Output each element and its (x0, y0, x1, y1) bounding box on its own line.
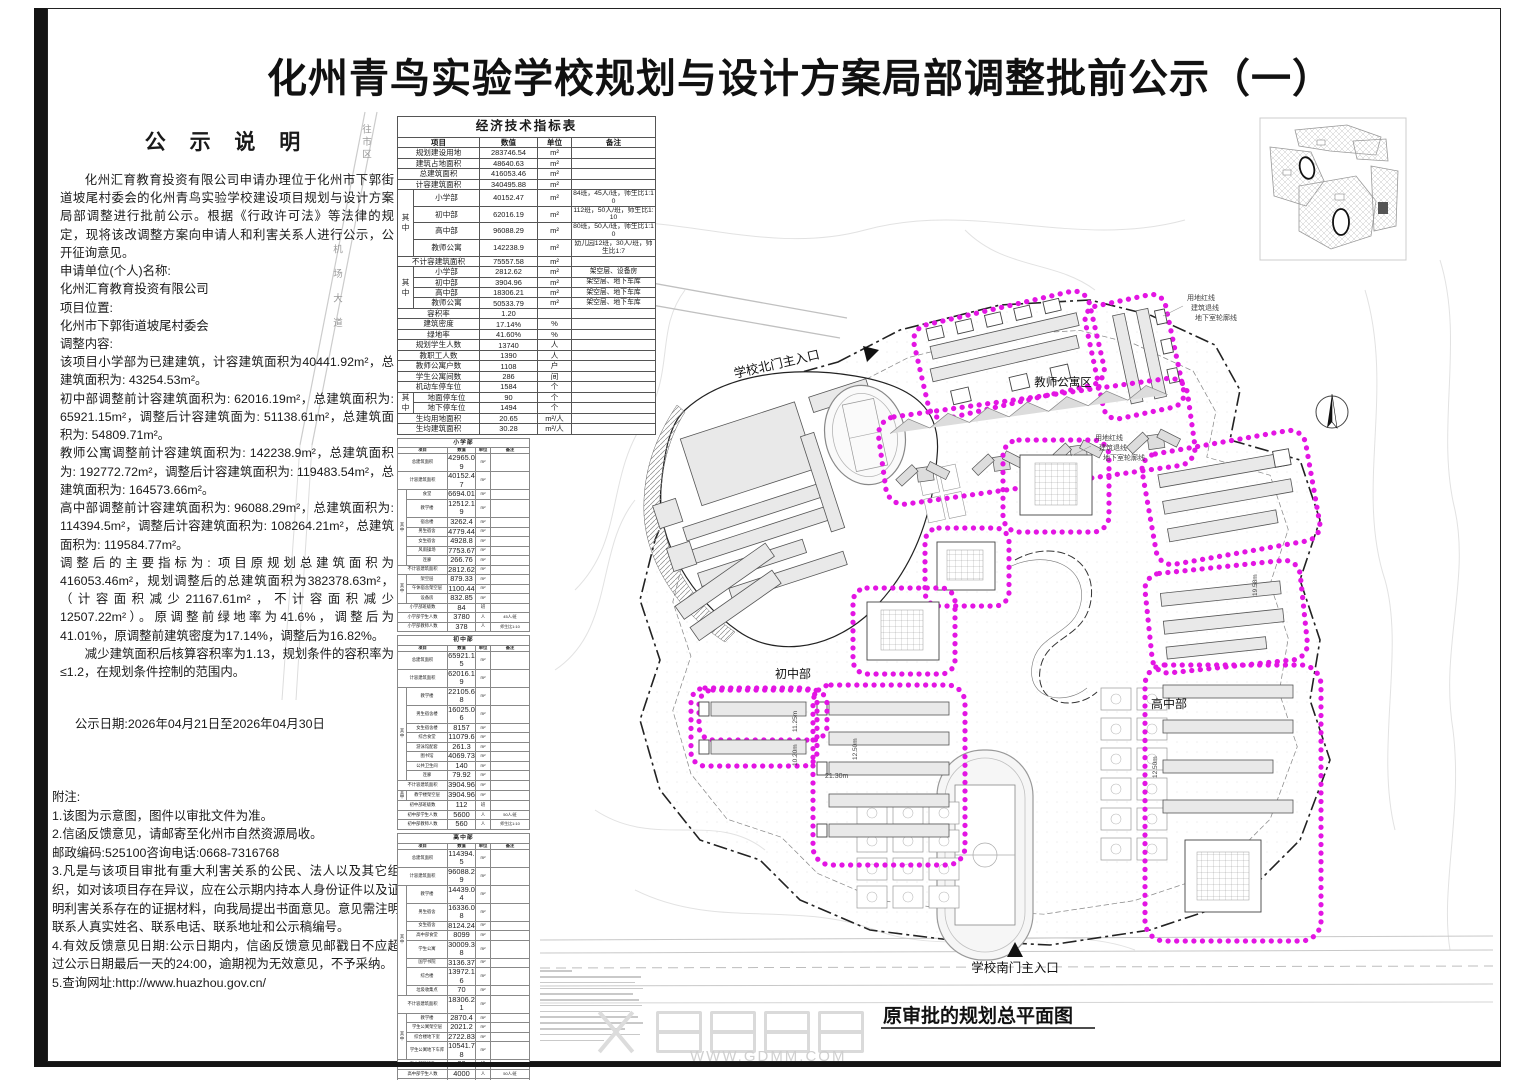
table-row: 学生公寓架空层2021.2m² (398, 1023, 530, 1033)
note-cell (491, 958, 530, 968)
page-title: 化州青鸟实验学校规划与设计方案局部调整批前公示（一） (160, 46, 1440, 104)
unit-cell: m² (476, 556, 491, 566)
note-cell: 84班，45人/班，师生比1:10 (572, 190, 656, 207)
north-arrow-icon (1316, 394, 1348, 428)
item-cell: 总建筑面积 (398, 169, 480, 179)
table-row: 总建筑面积114394.5m² (398, 849, 530, 867)
value-cell: 1584 (480, 382, 538, 392)
item-cell: 建筑密度 (398, 319, 480, 329)
item-cell: 地下停车位 (414, 403, 480, 413)
note-cell (572, 361, 656, 371)
unit-cell: 人 (476, 810, 491, 820)
item-cell: 男生宿舍 (407, 903, 448, 921)
redline-label-2: 用地红线 (1095, 433, 1123, 442)
unit-cell: % (538, 329, 572, 339)
note-cell (491, 517, 530, 527)
note-cell: 架空层、地下车库 (572, 277, 656, 287)
table-row: 教职工人数1390人 (398, 350, 656, 360)
table-row: 不计容建筑面积2812.62m² (398, 565, 530, 575)
unit-cell: m² (476, 490, 491, 500)
note-cell (491, 651, 530, 669)
item-cell: 男生宿舍 (407, 527, 448, 537)
indicator-column: 经济技术指标表项目数值单位备注规划建设用地283746.54m²建筑占地面积48… (397, 116, 655, 1080)
dim-21-30: 21.30m (825, 773, 849, 780)
unit-cell: m² (538, 288, 572, 298)
note-cell (491, 1013, 530, 1023)
value-cell: 17.14% (480, 319, 538, 329)
key-inset-map (1260, 118, 1406, 260)
dim-12-50-junior: 12.50m (852, 738, 859, 760)
column-header: 备注 (572, 137, 656, 147)
item-cell: 小学部学生人数 (398, 613, 448, 623)
unit-cell: m² (476, 885, 491, 903)
redline-labels-upper: 用地红线 建筑退线 地下室轮廓线 (1163, 293, 1237, 322)
table-row: 女生宿舍楼8157m² (398, 723, 530, 733)
table-row: 计容建筑面积96088.29m² (398, 867, 530, 885)
value-cell: 2722.83 (448, 1032, 476, 1042)
unit-cell: 人 (538, 340, 572, 350)
item-cell: 计容建筑面积 (398, 669, 448, 687)
notice-heading: 公 示 说 明 (60, 128, 394, 159)
value-cell: 3904.96 (480, 277, 538, 287)
item-cell: 食堂 (407, 490, 448, 500)
note-cell (491, 849, 530, 867)
table-row: 容积率1.20 (398, 308, 656, 318)
item-cell: 教学楼 (407, 885, 448, 903)
unit-cell: m² (476, 849, 491, 867)
unit-cell: m² (538, 239, 572, 256)
item-cell: 风雨操场 (407, 546, 448, 556)
unit-cell: m² (476, 565, 491, 575)
unit-cell: m² (476, 986, 491, 996)
unit-cell: m² (476, 903, 491, 921)
value-cell: 8099 (448, 931, 476, 941)
table-row: 设备房832.85m² (398, 594, 530, 604)
item-cell: 综合食堂 (407, 733, 448, 743)
unit-cell: m² (476, 867, 491, 885)
item-cell: 绿地率 (398, 329, 480, 339)
table-title: 高中部 (398, 833, 530, 843)
value-cell: 112 (448, 801, 476, 811)
unit-cell: m²/人 (538, 424, 572, 434)
note-cell (572, 413, 656, 423)
table-row: 其中教学楼14439.04m² (398, 885, 530, 903)
note-cell (491, 790, 530, 801)
table-row: 总建筑面积416053.46m² (398, 169, 656, 179)
note-cell (491, 472, 530, 490)
value-cell: 2021.2 (448, 1023, 476, 1033)
unit-cell: 间 (538, 371, 572, 381)
value-cell: 3136.37 (448, 958, 476, 968)
note-cell (491, 968, 530, 986)
note-cell (491, 752, 530, 762)
value-cell: 261.3 (448, 742, 476, 752)
unit-cell: m² (476, 1023, 491, 1033)
table-row: 不计容建筑面积75557.58m² (398, 256, 656, 266)
note-cell (572, 148, 656, 158)
group-cell: 其中 (398, 885, 407, 995)
group-cell: 其中 (398, 1013, 407, 1060)
unit-cell: m² (476, 761, 491, 771)
site-plan-map: 学校北门主入口 学校南门主入口 教师公寓区 初中部 高中部 11.25m 10.… (535, 110, 1505, 1065)
value-cell: 16336.08 (448, 903, 476, 921)
item-cell: 连廊 (407, 556, 448, 566)
table-row: 其中小学部40152.47m²84班，45人/班，师生比1:10 (398, 190, 656, 207)
unit-cell: m² (538, 190, 572, 207)
plan-title: 原审批的规划总平面图 (883, 1004, 1073, 1027)
table-row: 其中食堂6694.01m² (398, 490, 530, 500)
note-cell: 架空层、地下车库 (572, 298, 656, 308)
indicator-table: 经济技术指标表项目数值单位备注规划建设用地283746.54m²建筑占地面积48… (397, 116, 656, 435)
note-cell (491, 885, 530, 903)
table-row: 其中地面停车位90个 (398, 392, 656, 402)
table-row: 初中部教师人数560人师生比1:10 (398, 820, 530, 830)
note-cell (572, 392, 656, 402)
item-cell: 高中部学生人数 (398, 1069, 448, 1079)
unit-cell: m² (538, 148, 572, 158)
unit-cell: m² (476, 517, 491, 527)
senior-label: 高中部 (1151, 696, 1187, 711)
group-cell: 其中 (398, 190, 414, 257)
item-cell: 高中部 (414, 223, 480, 240)
table-title: 小学部 (398, 438, 530, 448)
value-cell: 4069.73 (448, 752, 476, 762)
table-row: 教师公寓户数1108户 (398, 361, 656, 371)
value-cell: 140 (448, 761, 476, 771)
value-cell: 10541.78 (448, 1042, 476, 1060)
dim-10-20: 10.20m (792, 744, 799, 766)
unit-cell: m² (538, 206, 572, 223)
note-cell (572, 179, 656, 189)
table-row: 宿舍楼3262.4m² (398, 517, 530, 527)
table-row: 高中部18306.21m²架空层、地下车库 (398, 288, 656, 298)
item-cell: 综合楼地下室 (407, 1032, 448, 1042)
table-row: 公共卫生间140m² (398, 761, 530, 771)
unit-cell: m² (476, 968, 491, 986)
unit-cell: m² (476, 472, 491, 490)
table-row: 生均建筑面积30.28m²/人 (398, 424, 656, 434)
indicator-table: 小学部项目数值单位备注总建筑面积42965.09m²计容建筑面积40152.47… (397, 438, 530, 632)
footnote-item: 5.查询网址:http://www.huazhou.gov.cn/ (52, 974, 400, 993)
item-cell: 国学书院 (407, 958, 448, 968)
item-cell: 教学楼 (407, 1013, 448, 1023)
unit-cell: m² (476, 931, 491, 941)
item-cell: 男生宿舍楼 (407, 705, 448, 723)
value-cell: 283746.54 (480, 148, 538, 158)
note-cell (491, 537, 530, 547)
unit-cell: 人 (538, 350, 572, 360)
value-cell: 18306.21 (480, 288, 538, 298)
footnotes-title: 附注: (52, 788, 400, 807)
note-cell (491, 454, 530, 472)
value-cell: 16025.06 (448, 705, 476, 723)
value-cell: 3780 (448, 613, 476, 623)
item-cell: 计容建筑面积 (398, 472, 448, 490)
setback-label-2: 建筑退线 (1099, 443, 1127, 452)
unit-cell: m² (476, 651, 491, 669)
item-cell: 宿舍楼 (407, 517, 448, 527)
table-row: 风雨操场7753.67m² (398, 546, 530, 556)
value-cell: 12512.19 (448, 499, 476, 517)
notice-sheet: 化州青鸟实验学校规划与设计方案局部调整批前公示（一） 往市区 机场大道 公 示 … (0, 0, 1529, 1080)
item-cell: 总建筑面积 (398, 651, 448, 669)
unit-cell: m² (476, 575, 491, 585)
table-row: 小学部学生人数3780人45人/班 (398, 613, 530, 623)
footnote-item: 1.该图为示意图，图件以审批文件为准。 (52, 807, 400, 826)
unit-cell: m² (538, 277, 572, 287)
table-row: 女生宿舍8124.24m² (398, 921, 530, 931)
unit-cell: m² (476, 669, 491, 687)
unit-cell: m² (476, 940, 491, 958)
table-row: 总建筑面积42965.09m² (398, 454, 530, 472)
basement-label-1: 地下室轮廓线 (1195, 313, 1237, 322)
unit-cell: m² (476, 537, 491, 547)
unit-cell (538, 308, 572, 318)
table-row: 高中部学生人数4000人50人/班 (398, 1069, 530, 1079)
item-cell: 公共卫生间 (407, 761, 448, 771)
table-row: 综合楼13972.16m² (398, 968, 530, 986)
table-row: 建筑密度17.14%% (398, 319, 656, 329)
note-cell (572, 169, 656, 179)
table-title: 初中部 (398, 636, 530, 646)
general-notes-block (540, 966, 646, 1045)
unit-cell: 人 (476, 820, 491, 830)
note-cell (491, 594, 530, 604)
unit-cell: m² (476, 499, 491, 517)
note-cell (491, 575, 530, 585)
note-cell (491, 1032, 530, 1042)
table-row: 高中部96088.29m²80班，50人/班，师生比1:10 (398, 223, 656, 240)
note-cell (491, 546, 530, 556)
notice-date: 公示日期:2026年04月21日至2026年04月30日 (60, 715, 394, 733)
item-cell: 教学楼架空层 (407, 790, 448, 801)
item-cell: 小学部班级数 (398, 603, 448, 613)
item-cell: 不计容建筑面积 (398, 995, 448, 1013)
table-row: 建筑占地面积48640.63m² (398, 158, 656, 168)
item-cell: 不计容建筑面积 (398, 565, 448, 575)
item-cell: 综合楼 (407, 968, 448, 986)
unit-cell: m² (538, 169, 572, 179)
indicator-table: 高中部项目数值单位备注总建筑面积114394.5m²计容建筑面积96088.29… (397, 833, 530, 1080)
value-cell: 2870.4 (448, 1013, 476, 1023)
note-cell (572, 329, 656, 339)
unit-cell: 班 (476, 801, 491, 811)
item-cell: 教学楼 (407, 499, 448, 517)
value-cell: 7753.67 (448, 546, 476, 556)
table-row: 规划建设用地283746.54m² (398, 148, 656, 158)
unit-cell: % (538, 319, 572, 329)
table-row: 男生宿舍楼16025.06m² (398, 705, 530, 723)
value-cell: 1108 (480, 361, 538, 371)
table-row: 综合食堂11079.6m² (398, 733, 530, 743)
value-cell: 142238.9 (480, 239, 538, 256)
value-cell: 2812.62 (480, 267, 538, 277)
item-cell: 初中部教师人数 (398, 820, 448, 830)
table-row: 初中部班级数112班 (398, 801, 530, 811)
value-cell: 4779.44 (448, 527, 476, 537)
table-row: 机动车停车位1584个 (398, 382, 656, 392)
dim-11-25: 11.25m (792, 711, 799, 732)
unit-cell: m² (476, 687, 491, 705)
unit-cell: 人 (476, 1069, 491, 1079)
unit-cell: m² (476, 527, 491, 537)
unit-cell: m² (476, 723, 491, 733)
column-header: 数值 (480, 137, 538, 147)
notice-paragraphs: 化州汇育教育投资有限公司申请办理位于化州市下郭街道坡尾村委会的化州青鸟实验学校建… (60, 171, 394, 682)
value-cell: 41.60% (480, 329, 538, 339)
item-cell: 小学部 (414, 190, 480, 207)
value-cell: 48640.63 (480, 158, 538, 168)
note-cell (491, 1042, 530, 1060)
item-cell: 午休宿舍架空层 (407, 584, 448, 594)
table-row: 生均用地面积20.65m²/人 (398, 413, 656, 423)
note-cell (491, 940, 530, 958)
note-cell (572, 319, 656, 329)
public-notice-text: 公 示 说 明 化州汇育教育投资有限公司申请办理位于化州市下郭街道坡尾村委会的化… (60, 128, 394, 734)
value-cell: 42965.09 (448, 454, 476, 472)
table-row: 地下停车位1494个 (398, 403, 656, 413)
footnote-list: 1.该图为示意图，图件以审批文件为准。2.信函反馈意见，请邮寄至化州市自然资源局… (52, 807, 400, 993)
note-cell (491, 801, 530, 811)
notice-paragraph: 化州汇育教育投资有限公司申请办理位于化州市下郭街道坡尾村委会的化州青鸟实验学校建… (60, 171, 394, 262)
value-cell: 1390 (480, 350, 538, 360)
value-cell: 40152.47 (480, 190, 538, 207)
value-cell: 30.28 (480, 424, 538, 434)
unit-cell: m² (476, 958, 491, 968)
table-row: 学生公寓间数286间 (398, 371, 656, 381)
item-cell: 小学部教师人数 (398, 622, 448, 632)
item-cell: 教师公寓户数 (398, 361, 480, 371)
notice-paragraph: 申请单位(个人)名称: (60, 262, 394, 280)
unit-cell: m² (476, 771, 491, 781)
unit-cell: m² (476, 780, 491, 790)
note-cell (491, 986, 530, 996)
note-cell: 架空层、设备房 (572, 267, 656, 277)
item-cell: 初中部 (414, 206, 480, 223)
item-cell: 图书馆 (407, 752, 448, 762)
notice-paragraph: 教师公寓调整前计容建筑面积为: 142238.9m²，总建筑面积为: 19277… (60, 444, 394, 499)
table-row: 女生宿舍4928.8m² (398, 537, 530, 547)
unit-cell: m² (476, 790, 491, 801)
item-cell: 计容建筑面积 (398, 867, 448, 885)
note-cell (491, 556, 530, 566)
value-cell: 5600 (448, 810, 476, 820)
unit-cell: m² (538, 179, 572, 189)
item-cell: 连廊 (407, 771, 448, 781)
table-row: 其中架空层879.33m² (398, 575, 530, 585)
basement-label-2: 地下室轮廓线 (1103, 453, 1145, 462)
note-cell: 师生比1:10 (491, 622, 530, 632)
note-cell (572, 308, 656, 318)
value-cell: 75557.58 (480, 256, 538, 266)
indicator-table: 初中部项目数值单位备注总建筑面积65921.15m²计容建筑面积62016.19… (397, 635, 530, 830)
group-cell: 其中 (398, 790, 407, 801)
note-cell: 45人/班 (491, 613, 530, 623)
item-cell: 教师公寓 (414, 239, 480, 256)
note-cell (491, 733, 530, 743)
note-cell: 架空层、地下车库 (572, 288, 656, 298)
note-cell: 50人/班 (491, 1069, 530, 1079)
item-cell: 初中部班级数 (398, 801, 448, 811)
note-cell (491, 565, 530, 575)
item-cell: 女生宿舍楼 (407, 723, 448, 733)
football-stadium (937, 750, 1033, 960)
dim-12-50-senior: 12.50m (1152, 756, 1159, 778)
unit-cell: m² (538, 223, 572, 240)
unit-cell: m² (538, 298, 572, 308)
item-cell: 总建筑面积 (398, 454, 448, 472)
note-cell: 112班，50人/班，师生比1:10 (572, 206, 656, 223)
value-cell: 2812.62 (448, 565, 476, 575)
value-cell: 50533.79 (480, 298, 538, 308)
table-row: 计容建筑面积62016.19m² (398, 669, 530, 687)
group-cell: 其中 (398, 392, 414, 413)
note-cell: 80班，50人/班，师生比1:10 (572, 223, 656, 240)
table-row: 绿地率41.60%% (398, 329, 656, 339)
column-header: 项目 (398, 137, 480, 147)
note-cell (491, 603, 530, 613)
note-cell (491, 921, 530, 931)
table-row: 教师公寓142238.9m²幼儿园12班，30人/班，师生比1:7 (398, 239, 656, 256)
item-cell: 不计容建筑面积 (398, 256, 480, 266)
notice-paragraph: 化州市下郭街道坡尾村委会 (60, 317, 394, 335)
plan-title-block: 原审批的规划总平面图 (881, 1004, 1095, 1028)
unit-cell: m² (538, 158, 572, 168)
table-row: 总建筑面积65921.15m² (398, 651, 530, 669)
unit-cell: m² (476, 1032, 491, 1042)
note-cell (572, 424, 656, 434)
unit-cell: 个 (538, 392, 572, 402)
note-cell: 幼儿园12班，30人/班，师生比1:7 (572, 239, 656, 256)
table-row: 不计容建筑面积3904.96m² (398, 780, 530, 790)
unit-cell: 班 (476, 603, 491, 613)
value-cell: 11079.6 (448, 733, 476, 743)
value-cell: 1494 (480, 403, 538, 413)
item-cell: 总建筑面积 (398, 849, 448, 867)
note-cell (491, 527, 530, 537)
item-cell: 学生公寓 (407, 940, 448, 958)
value-cell: 4928.8 (448, 537, 476, 547)
table-row: 学生公寓地下车库10541.78m² (398, 1042, 530, 1060)
value-cell: 22105.68 (448, 687, 476, 705)
group-cell: 其中 (398, 267, 414, 309)
value-cell: 6694.01 (448, 490, 476, 500)
item-cell: 设备房 (407, 594, 448, 604)
footnote-item: 2.信函反馈意见，请邮寄至化州市自然资源局收。 (52, 825, 400, 844)
south-gate-label: 学校南门主入口 (971, 960, 1059, 975)
item-cell: 高中部 (414, 288, 480, 298)
item-cell: 女生宿舍 (407, 537, 448, 547)
item-cell: 规划学生人数 (398, 340, 480, 350)
notice-paragraph: 减少建筑面积后核算容积率为1.13，规划条件的容积率为≤1.2，在规划条件控制的… (60, 645, 394, 681)
dim-19-58: 19.58m (1252, 574, 1259, 596)
item-cell: 生均建筑面积 (398, 424, 480, 434)
unit-cell: m² (476, 546, 491, 556)
item-cell: 容积率 (398, 308, 480, 318)
footnotes: 附注: 1.该图为示意图，图件以审批文件为准。2.信函反馈意见，请邮寄至化州市自… (52, 788, 400, 993)
value-cell: 266.76 (448, 556, 476, 566)
table-row: 其中教学楼架空层3904.96m² (398, 790, 530, 801)
footnote-item: 3.凡是与该项目审批有重大利害关系的公民、法人以及其它组织，如对该项目存在异议，… (52, 862, 400, 936)
unit-cell: 户 (538, 361, 572, 371)
note-cell (572, 403, 656, 413)
notice-paragraph: 化州汇育教育投资有限公司 (60, 280, 394, 298)
note-cell (491, 490, 530, 500)
economic-indicator-table: 经济技术指标表项目数值单位备注规划建设用地283746.54m²建筑占地面积48… (397, 116, 655, 435)
table-row: 连廊266.76m² (398, 556, 530, 566)
value-cell: 96088.29 (480, 223, 538, 240)
note-cell (491, 705, 530, 723)
